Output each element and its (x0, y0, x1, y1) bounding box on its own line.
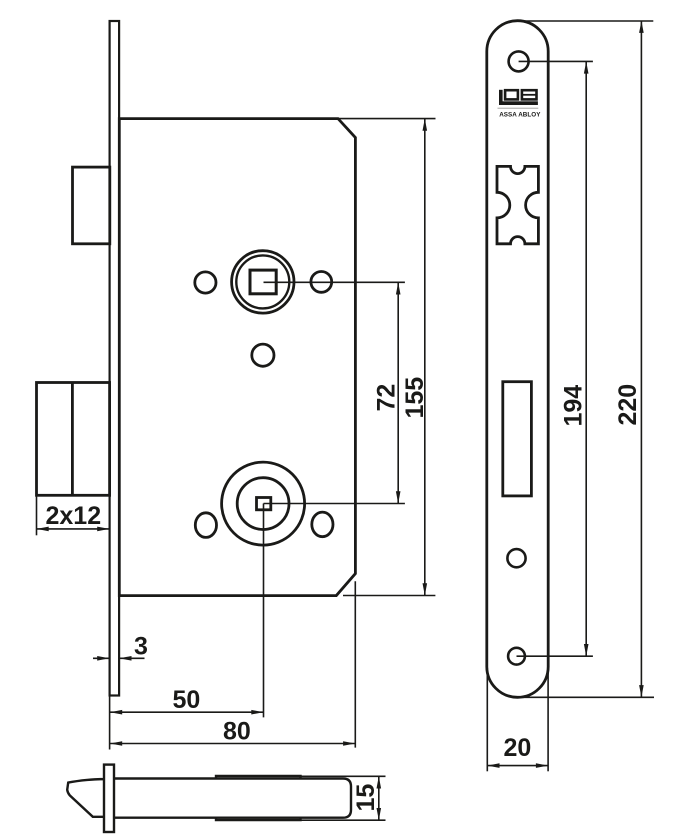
svg-text:194: 194 (560, 385, 588, 427)
svg-text:15: 15 (352, 784, 380, 812)
svg-text:220: 220 (614, 384, 642, 426)
svg-text:3: 3 (134, 633, 148, 661)
svg-text:72: 72 (373, 384, 401, 412)
svg-text:ASSA ABLOY: ASSA ABLOY (499, 111, 541, 118)
svg-text:50: 50 (173, 686, 201, 714)
svg-text:155: 155 (401, 377, 429, 419)
svg-text:20: 20 (504, 734, 532, 762)
svg-text:80: 80 (223, 718, 251, 746)
svg-text:2x12: 2x12 (46, 502, 102, 530)
